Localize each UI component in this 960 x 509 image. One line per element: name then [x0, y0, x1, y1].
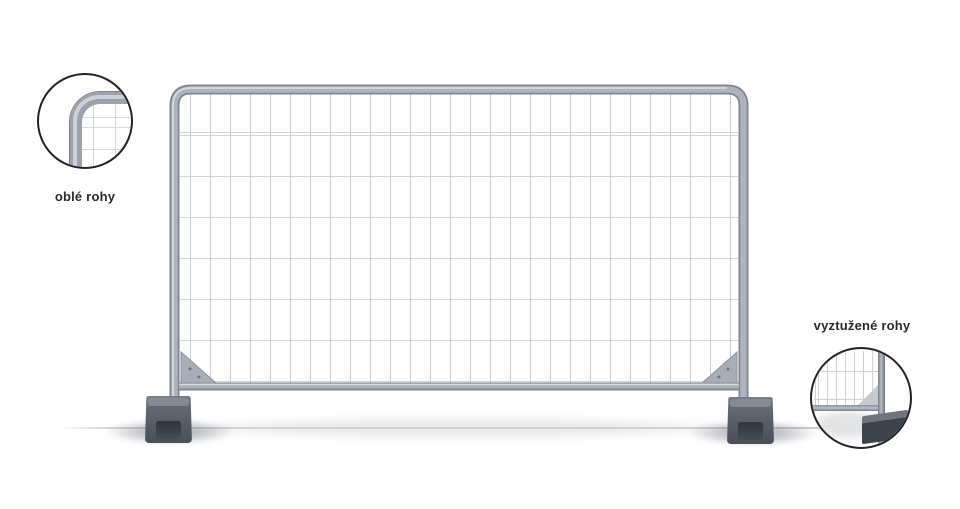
reinforced-corners-label: vyztužené rohy	[798, 318, 926, 333]
callout-foot-block	[862, 410, 908, 444]
right-foot-top-face	[730, 399, 771, 407]
rounded-corner-callout-circle	[37, 73, 133, 169]
left-foot-block	[145, 396, 192, 443]
right-foot-block	[727, 397, 774, 444]
callout-bottom-rail	[810, 405, 884, 411]
callout-tube-highlight	[73, 95, 133, 169]
right-foot-recess	[738, 422, 763, 440]
rounded-corners-label: oblé rohy	[27, 189, 143, 204]
left-foot-recess	[156, 421, 181, 439]
reinforced-corner-callout-circle	[810, 347, 912, 449]
fence-mesh	[180, 94, 738, 384]
product-image: oblé rohy vyztužené rohy	[0, 0, 960, 509]
left-foot-top-face	[148, 398, 189, 406]
